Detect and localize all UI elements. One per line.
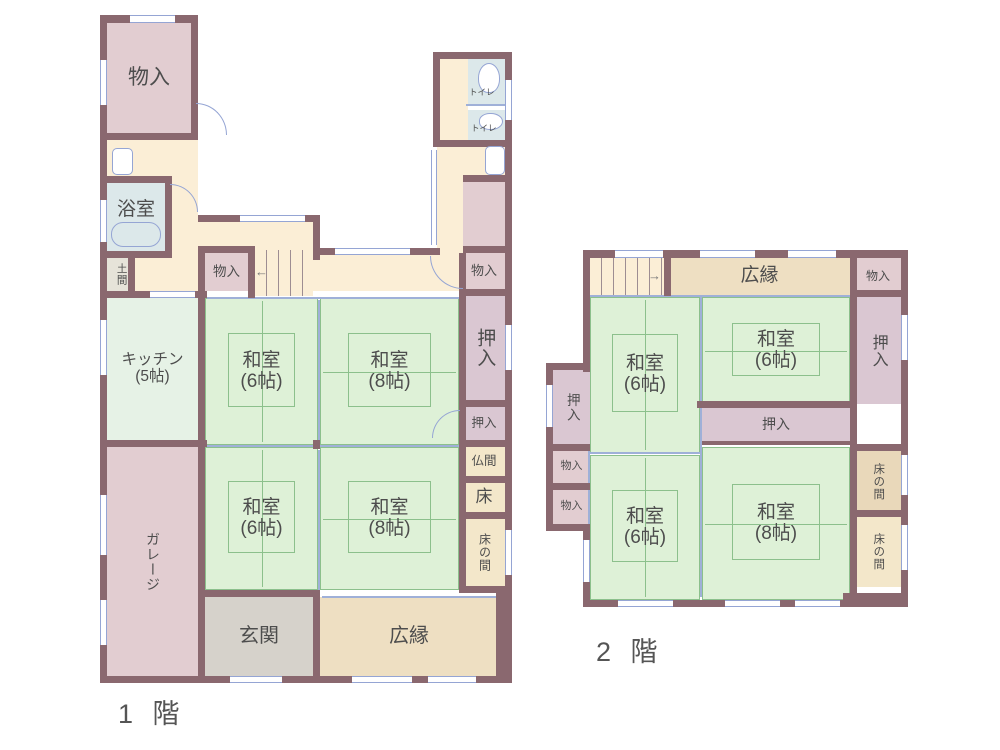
room-label: 押入 [564,393,579,422]
wall-segment [850,444,908,451]
room-label: 玄関 [239,626,279,648]
room-label: 和室 [242,497,280,518]
window [700,250,755,258]
room-storage: 物入 [463,253,505,289]
wall-segment [102,176,172,183]
room-kitchen: キッチン(5帖) [107,298,198,440]
wall-segment [198,590,320,597]
room-size: (8帖) [368,371,410,392]
hallway [440,59,468,144]
sliding-door-line [590,452,700,454]
room-toko: 床 [463,483,505,512]
floor-plan-canvas: 物入 トイレ トイレ 浴室 土間 物入 ← 物入 キッチン(5帖) 和室(6帖)… [0,0,1000,750]
room-genkan: 玄関 [205,597,313,676]
bathtub-icon [111,222,161,247]
room-oshiire: 押入 [855,297,901,404]
sliding-door-line [322,596,498,598]
window [150,291,195,298]
room-label: ガレージ [145,532,160,592]
room-label: 和室 [626,353,664,374]
wall-segment [850,290,908,297]
wall-segment [843,593,908,605]
window [615,250,663,258]
window [618,600,673,607]
room-label: 浴室 [117,200,155,221]
wall-segment [546,444,590,451]
room-size: (8帖) [755,523,797,544]
wall-segment [313,440,320,449]
wall-segment [463,400,512,407]
stairs-arrow-icon: → [648,268,661,283]
window [230,676,282,683]
room-size: (5帖) [135,368,169,385]
wall-segment [102,251,172,258]
wall-segment [664,252,671,296]
window [100,600,107,645]
window [505,325,512,370]
room-garage: ガレージ [107,447,198,676]
wall-segment [463,175,512,182]
room-tokonoma: 床の間 [463,519,505,586]
window [100,200,107,242]
wall-segment [463,289,512,296]
room-label: 和室 [370,350,408,371]
window [505,80,512,120]
wall-segment [198,291,205,447]
room-washitsu: 和室(6帖) [205,447,318,590]
room-oshiire: 押入 [702,407,850,442]
wall-segment [463,512,512,519]
room-washitsu: 和室(6帖) [590,297,700,453]
wall-segment [248,246,255,298]
room-washitsu: 和室(6帖) [590,455,700,600]
room-storage: 物入 [107,23,191,133]
sliding-door-line [700,297,702,597]
sliding-door-line [318,300,320,445]
window [788,250,836,258]
wall-segment [702,441,850,445]
wall-segment [459,253,466,593]
window [901,525,908,570]
window [428,676,476,683]
wall-segment [198,246,205,298]
window [795,600,840,607]
room-label: 物入 [213,265,240,280]
room-label: 押入 [471,417,496,431]
window [725,600,780,607]
wall-segment [198,440,205,683]
room-oshiire: 押入 [463,296,505,400]
window [100,320,107,375]
sink-icon [485,146,505,175]
room-washitsu: 和室(6帖) [205,298,318,445]
sliding-door-line [466,104,507,106]
wall-segment [850,510,908,517]
wall-segment [102,440,207,447]
room-size: (6帖) [624,527,666,548]
sliding-door-line [318,450,320,590]
room-label: 広縁 [389,626,429,648]
room-size: (8帖) [368,518,410,539]
room-label: 床の間 [872,463,884,501]
room-washitsu: 和室(8帖) [320,447,459,590]
window [335,248,410,255]
room-tokonoma: 床の間 [855,517,901,587]
door-arc-icon [196,103,227,135]
wall-segment [546,483,590,490]
room-label: 物入 [471,264,497,278]
room-oshiire: 押入 [463,407,505,440]
room-size: (6帖) [240,518,282,539]
room-label: 和室 [370,497,408,518]
window [901,455,908,495]
room-storage: 物入 [855,258,901,294]
stairs-arrow-icon: ← [255,264,268,279]
room-label: 仏間 [471,455,496,469]
sliding-door-line [207,297,459,299]
wall-segment [463,476,512,483]
room-oshiire: 押入 [553,370,590,444]
room-label: 物入 [128,67,170,90]
window [431,150,437,245]
room-size: (6帖) [624,374,666,395]
wall-segment [496,590,512,683]
room-storage [463,182,505,246]
room-label: 物入 [866,270,890,283]
room-hiroen: 広縁 [667,258,852,295]
room-label: 床の間 [872,533,884,571]
wall-segment [583,250,590,372]
sliding-door-line [207,445,459,447]
room-label: 床の間 [478,533,491,572]
hallway [135,258,198,291]
sliding-door-line [590,295,850,297]
wall-segment [433,52,440,147]
room-storage: 物入 [553,451,590,483]
room-label: 押入 [474,328,495,368]
wall-segment [198,246,255,253]
room-storage: 物入 [205,253,248,291]
window [546,385,553,427]
wall-segment [433,52,512,59]
room-label: 広縁 [740,266,778,287]
window [901,315,908,360]
room-label: 押入 [762,417,790,432]
room-label: トイレ [471,122,497,134]
room-label: 和室 [626,506,664,527]
wall-segment [100,133,198,140]
room-label: 土間 [115,263,126,286]
room-hiroen: 広縁 [320,597,498,676]
room-label: 床 [476,488,493,506]
room-washitsu: 和室(6帖) [702,297,850,404]
wall-segment [313,593,320,683]
room-label: トイレ [469,86,495,98]
window [130,15,175,23]
window [100,60,107,105]
window [240,215,305,222]
room-label: 押入 [869,334,886,368]
room-label: キッチン [121,351,183,368]
wall-segment [463,440,512,447]
room-label: 和室 [757,329,795,350]
window [505,530,512,575]
wall-segment [463,246,512,253]
window [583,540,590,582]
room-washitsu: 和室(8帖) [702,447,850,600]
room-size: (6帖) [240,371,282,392]
room-label: 和室 [242,350,280,371]
window [352,676,412,683]
wall-segment [697,401,857,408]
room-storage: 物入 [553,490,590,524]
room-butsuma: 仏間 [463,447,505,476]
room-label: 物入 [561,501,583,513]
floor2-caption: 2 階 [596,630,664,669]
floor1-caption: 1 階 [118,692,186,731]
room-size: (6帖) [755,350,797,371]
room-label: 和室 [757,502,795,523]
window [100,495,107,555]
wall-segment [850,254,857,600]
sink-icon [112,148,133,175]
room-label: 物入 [561,461,583,473]
room-tokonoma: 床の間 [855,450,901,514]
